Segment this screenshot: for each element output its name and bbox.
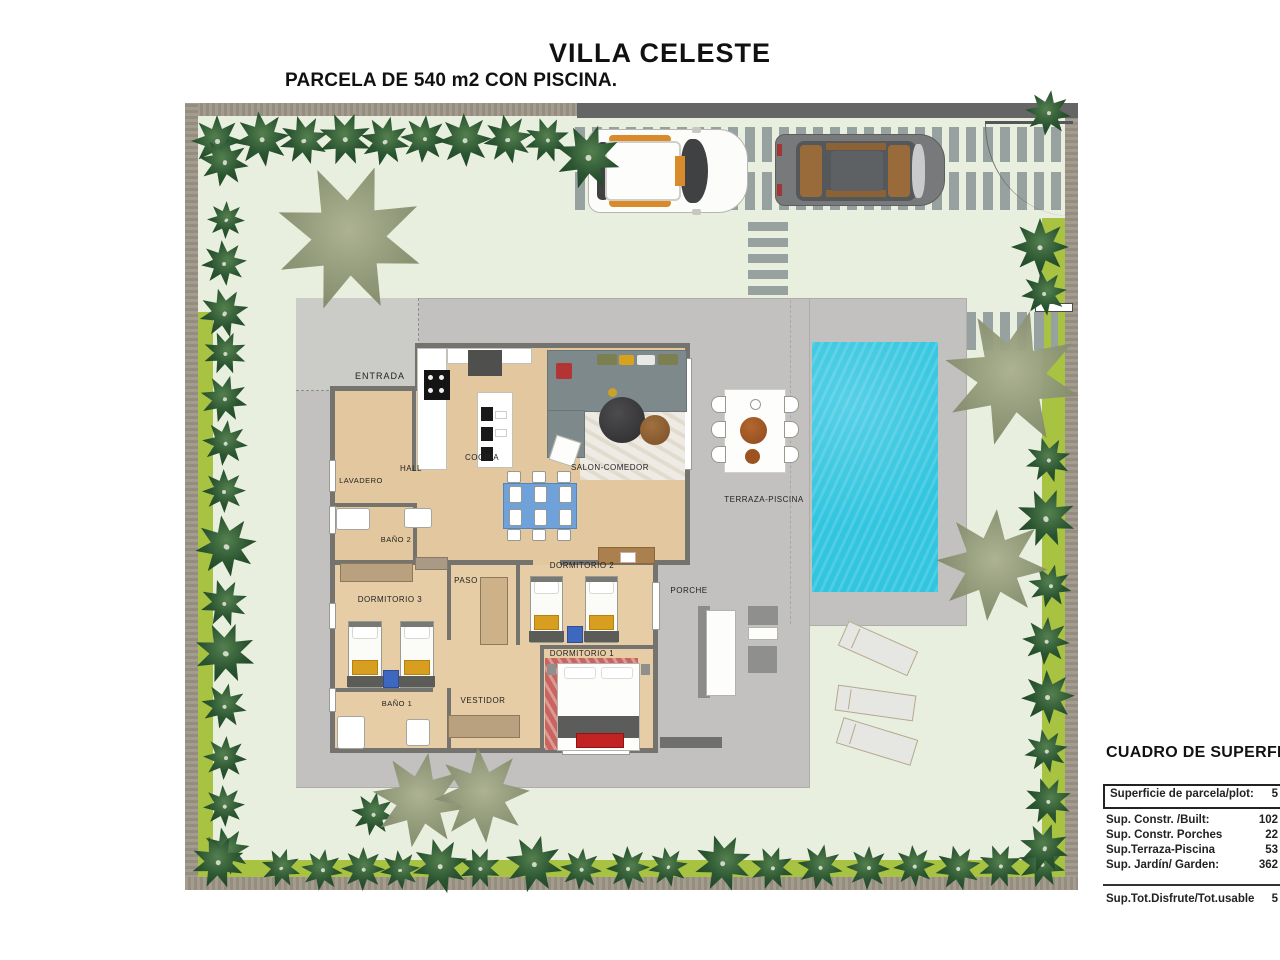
white-car-icon	[588, 129, 748, 213]
wall-paso-left	[447, 565, 451, 640]
porch-table	[748, 606, 778, 625]
summary-header-value: 5	[1252, 788, 1278, 800]
summary-header-label: Superficie de parcela/plot:	[1110, 788, 1254, 800]
decor-gold	[608, 388, 617, 397]
window-west-4	[329, 688, 336, 712]
room-label-dorm2: DORMITORIO 2	[550, 561, 615, 570]
swimming-pool	[812, 342, 938, 592]
porch-table-white	[748, 627, 778, 640]
summary-row-label: Sup. Constr. /Built:	[1106, 814, 1210, 826]
walk-path	[748, 222, 788, 308]
stove-icon	[424, 370, 450, 400]
dining-chair	[557, 471, 571, 483]
summary-divider	[1103, 884, 1280, 886]
summary-heading: CUADRO DE SUPERFI	[1106, 744, 1280, 762]
summary-row-label: Sup. Constr. Porches	[1106, 829, 1222, 841]
room-label-dorm3: DORMITORIO 3	[358, 595, 423, 604]
summary-row-value: 53	[1240, 844, 1278, 856]
dining-chair	[557, 529, 571, 541]
window-west-1	[329, 460, 336, 492]
room-label-porche: PORCHE	[670, 586, 707, 595]
porch-stool	[748, 646, 777, 673]
terrace-chair	[784, 396, 799, 413]
room-label-cocina: COCINA	[465, 453, 499, 462]
coffee-table-brown	[640, 415, 670, 445]
closet-paso-tall	[480, 577, 508, 645]
driveway-gate-strip	[577, 103, 1078, 118]
room-label-vestidor: VESTIDOR	[461, 696, 506, 705]
kitchen-counter	[417, 348, 447, 470]
wall-bath2-top	[333, 503, 417, 507]
room-label-salon: SALON-COMEDOR	[571, 463, 649, 472]
room-label-hall: HALL	[400, 464, 422, 473]
room-label-paso: PASO	[454, 576, 478, 585]
terrace-chair	[711, 421, 726, 438]
window-dorm2-east	[652, 582, 660, 630]
summary-row-value: 362	[1240, 859, 1278, 871]
summary-row-label: Sup.Terraza-Piscina	[1106, 844, 1215, 856]
window-west-2	[329, 506, 336, 534]
room-label-dorm1: DORMITORIO 1	[550, 649, 615, 658]
nightstand	[383, 670, 399, 688]
terrace-chair	[784, 446, 799, 463]
room-label-bano1: BAÑO 1	[382, 699, 413, 708]
bathtub-bath2	[336, 508, 370, 530]
porch-step	[660, 737, 722, 748]
gray-car-icon	[775, 134, 945, 206]
window-west-3	[329, 603, 336, 629]
terrace-chair	[711, 396, 726, 413]
boundary-wall-left	[185, 103, 198, 890]
bed-single	[585, 576, 618, 643]
room-label-entrada: ENTRADA	[355, 371, 405, 381]
page-title: VILLA CELESTE	[410, 38, 910, 69]
wardrobe-dorm3	[340, 563, 413, 582]
sink-bath2	[404, 508, 432, 528]
dining-chair	[532, 529, 546, 541]
wall-bath1-top	[333, 688, 433, 692]
summary-total-label: Sup.Tot.Disfrute/Tot.usable	[1106, 893, 1254, 905]
terrace-plate	[750, 399, 761, 410]
sink-bath1	[406, 719, 430, 746]
bed-double	[557, 663, 640, 751]
shower-bath1	[337, 716, 365, 749]
bed-single	[400, 621, 434, 688]
bed-single	[348, 621, 382, 688]
dining-table	[503, 483, 577, 529]
wall-vestidor-right	[540, 645, 544, 753]
boundary-wall-top	[185, 103, 577, 116]
room-label-lavadero: LAVADERO	[339, 476, 383, 485]
nightstand	[567, 626, 583, 643]
nightstand-gray	[641, 664, 650, 675]
boundary-wall-right	[1065, 118, 1078, 890]
dining-chair	[532, 471, 546, 483]
wall-kitchen-left	[412, 391, 416, 471]
wall-dorm2-left	[516, 565, 520, 645]
closet-paso	[415, 557, 448, 570]
wall-hall-top	[333, 386, 420, 391]
summary-row-label: Sup. Jardín/ Garden:	[1106, 859, 1219, 871]
dining-chair	[507, 471, 521, 483]
floor-plan-page: VILLA CELESTE PARCELA DE 540 m2 CON PISC…	[0, 0, 1280, 960]
terrace-chair	[784, 421, 799, 438]
wardrobe-vestidor	[448, 715, 520, 738]
page-subtitle: PARCELA DE 540 m2 CON PISCINA.	[285, 70, 617, 92]
room-label-bano2: BAÑO 2	[381, 535, 412, 544]
summary-total-value: 5	[1252, 893, 1278, 905]
terrace-bowl-small	[745, 449, 760, 464]
extractor-hood	[468, 350, 502, 376]
terrace-chair	[711, 446, 726, 463]
porch-lounge	[706, 610, 736, 696]
summary-row-value: 102	[1240, 814, 1278, 826]
nightstand-gray	[547, 664, 556, 675]
bed-single	[530, 576, 563, 643]
room-label-terraza: TERRAZA-PISCINA	[724, 495, 804, 504]
terrace-bowl	[740, 417, 767, 444]
dining-chair	[507, 529, 521, 541]
coffee-table-dark	[599, 397, 645, 443]
summary-row-value: 22	[1240, 829, 1278, 841]
